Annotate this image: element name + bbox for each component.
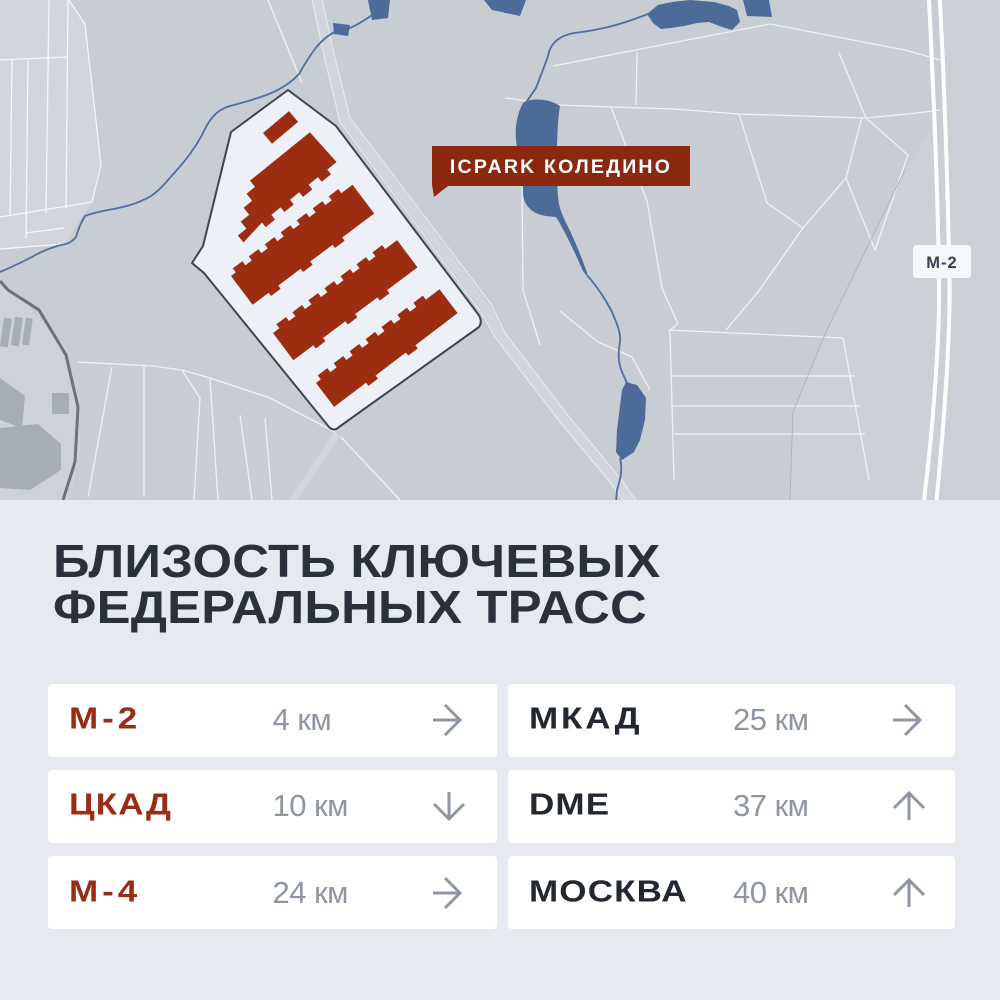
svg-text:ICPARK КОЛЕДИНО: ICPARK КОЛЕДИНО — [450, 156, 672, 178]
svg-text:М-2: М-2 — [926, 254, 957, 272]
